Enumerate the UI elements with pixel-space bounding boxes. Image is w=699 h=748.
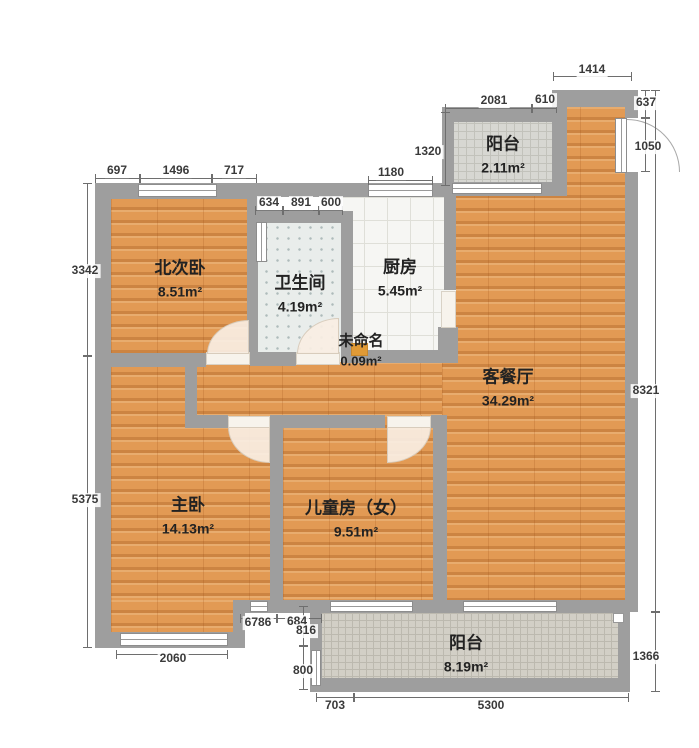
room-area: 8.19m² (444, 656, 488, 676)
dimension-label: 600 (319, 196, 343, 210)
dimension-label: 5300 (476, 699, 507, 713)
wall (438, 327, 458, 363)
room-name: 儿童房（女） (305, 497, 407, 522)
wall (95, 183, 111, 648)
window (138, 184, 217, 197)
room-area: 0.09m² (338, 352, 383, 371)
dimension-label: 1050 (633, 140, 664, 154)
dimension-label: 5375 (70, 493, 101, 507)
window (250, 601, 268, 612)
dimension-label: 1366 (631, 650, 662, 664)
floorplan-canvas: 北次卧 8.51m² 卫生间 4.19m² 厨房 5.45m² 阳台 2.11m… (0, 0, 699, 748)
room-area: 2.11m² (481, 157, 525, 177)
wall (310, 678, 630, 692)
entry-door (615, 118, 627, 173)
column-marker (613, 613, 624, 623)
wall (270, 415, 283, 613)
room-name: 阳台 (481, 133, 525, 158)
dimension-label: 703 (323, 699, 347, 713)
dimension-label: 634 (257, 196, 281, 210)
dimension-label: 2060 (158, 652, 189, 666)
room-label-kids-room: 儿童房（女） 9.51m² (305, 497, 407, 542)
wall (433, 415, 447, 613)
room-name: 阳台 (444, 632, 488, 657)
dimension-label: 1414 (577, 63, 608, 77)
window (120, 633, 228, 646)
room-name: 未命名 (338, 331, 383, 353)
dimension-label: 8321 (631, 384, 662, 398)
dimension-label: 800 (291, 664, 315, 678)
dimension-label: 3342 (70, 264, 101, 278)
room-label-living-dining: 客餐厅 34.29m² (482, 366, 534, 411)
window (368, 184, 433, 197)
room-label-kitchen: 厨房 5.45m² (378, 256, 422, 301)
dimension-label: 610 (533, 93, 557, 107)
room-area: 5.45m² (378, 280, 422, 300)
window (452, 183, 542, 194)
dimension-label: 717 (222, 164, 246, 178)
room-label-balcony-bottom: 阳台 8.19m² (444, 632, 488, 677)
room-name: 北次卧 (155, 257, 206, 282)
wall (250, 352, 296, 366)
room-name: 厨房 (378, 256, 422, 281)
room-area: 4.19m² (275, 296, 326, 316)
room-name: 卫生间 (275, 272, 326, 297)
dimension-label: 1320 (413, 145, 444, 159)
floor-master-bedroom-lower (111, 600, 233, 632)
room-label-balcony-top: 阳台 2.11m² (481, 133, 525, 178)
room-label-bathroom: 卫生间 4.19m² (275, 272, 326, 317)
window (463, 601, 557, 612)
door-opening (441, 291, 456, 328)
dimension-label: 891 (289, 196, 313, 210)
room-name: 客餐厅 (482, 366, 534, 391)
dimension-label: 816 (294, 624, 318, 638)
room-area: 8.51m² (155, 281, 206, 301)
window (256, 222, 267, 262)
room-name: 主卧 (162, 494, 214, 519)
dimension-label: 637 (634, 96, 658, 110)
wall (444, 197, 456, 290)
room-area: 34.29m² (482, 390, 534, 410)
dimension-label: 1180 (376, 166, 406, 180)
wall (190, 415, 228, 428)
room-label-master-bedroom: 主卧 14.13m² (162, 494, 214, 539)
dimension-label: 2081 (479, 94, 510, 108)
wall (270, 415, 385, 428)
room-label-unnamed: 未命名 0.09m² (338, 331, 383, 372)
room-area: 9.51m² (305, 521, 407, 541)
window (330, 601, 413, 612)
dimension-label: 697 (105, 164, 129, 178)
dimension-line (651, 90, 660, 612)
room-area: 14.13m² (162, 518, 214, 538)
room-label-north-bedroom: 北次卧 8.51m² (155, 257, 206, 302)
dimension-label: 1496 (161, 164, 192, 178)
dimension-label: 6786 (243, 616, 274, 630)
